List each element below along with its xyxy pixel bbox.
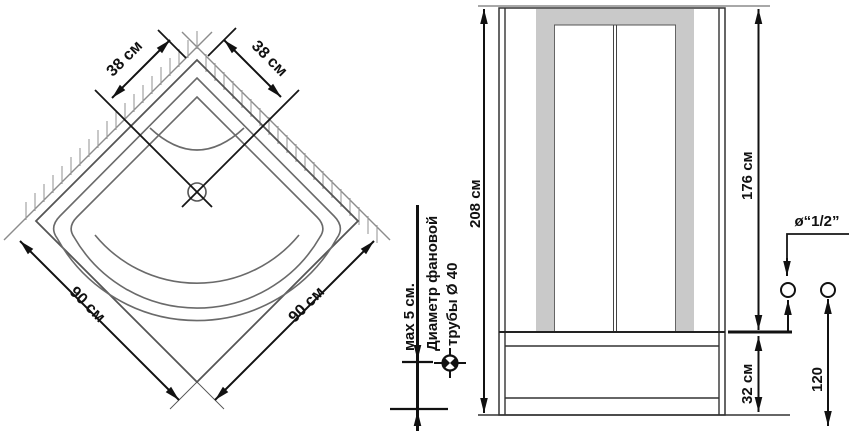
front-view-diagram: 208 см 176 см 32 см [467,6,792,415]
fitting-leader-line [787,234,849,268]
corner-ref-tick-left [158,30,186,58]
dim-label-120: 120 [809,367,826,392]
dim-label-32: 32 см [739,364,756,404]
dim-label-38-right: 38 см [248,38,290,80]
installation-diagram: 38 см 38 см 90 см 90 см мах 5 см. Диамет… [0,0,850,431]
tray-rim-contour-2 [71,97,323,308]
max-distance-label: мах 5 см. [401,283,418,351]
pipe-note-line1: Диаметр фановой [424,216,441,351]
water-connection-detail: ø“1/2” 120 [781,213,849,426]
pipe-note-line2: трубы Ø 40 [444,263,461,346]
dim-label-208: 208 см [467,179,484,228]
door-column-right [676,25,694,331]
tray-rim-contour-1 [54,78,341,321]
pipe-position-symbol [434,348,466,378]
tray-seat-arc [150,128,244,150]
dim-label-176: 176 см [739,151,756,200]
fitting-size-label: ø“1/2” [794,213,839,230]
dim-label-38-left: 38 см [104,38,146,80]
drain-axis-line-left [95,90,212,207]
drain-pipe-detail: мах 5 см. Диаметр фановой трубы Ø 40 [390,205,466,431]
door-top-panel [536,9,694,25]
door-column-left [536,25,554,331]
tray-outer-edge [36,60,358,382]
drain-axis-line-right [182,90,299,207]
tray-corner-extensions [170,382,224,409]
top-view-diagram: 38 см 38 см 90 см 90 см [4,28,390,409]
tray-basin-arc [95,235,299,283]
connection-point-right [821,283,835,297]
connection-point-left [781,283,795,297]
